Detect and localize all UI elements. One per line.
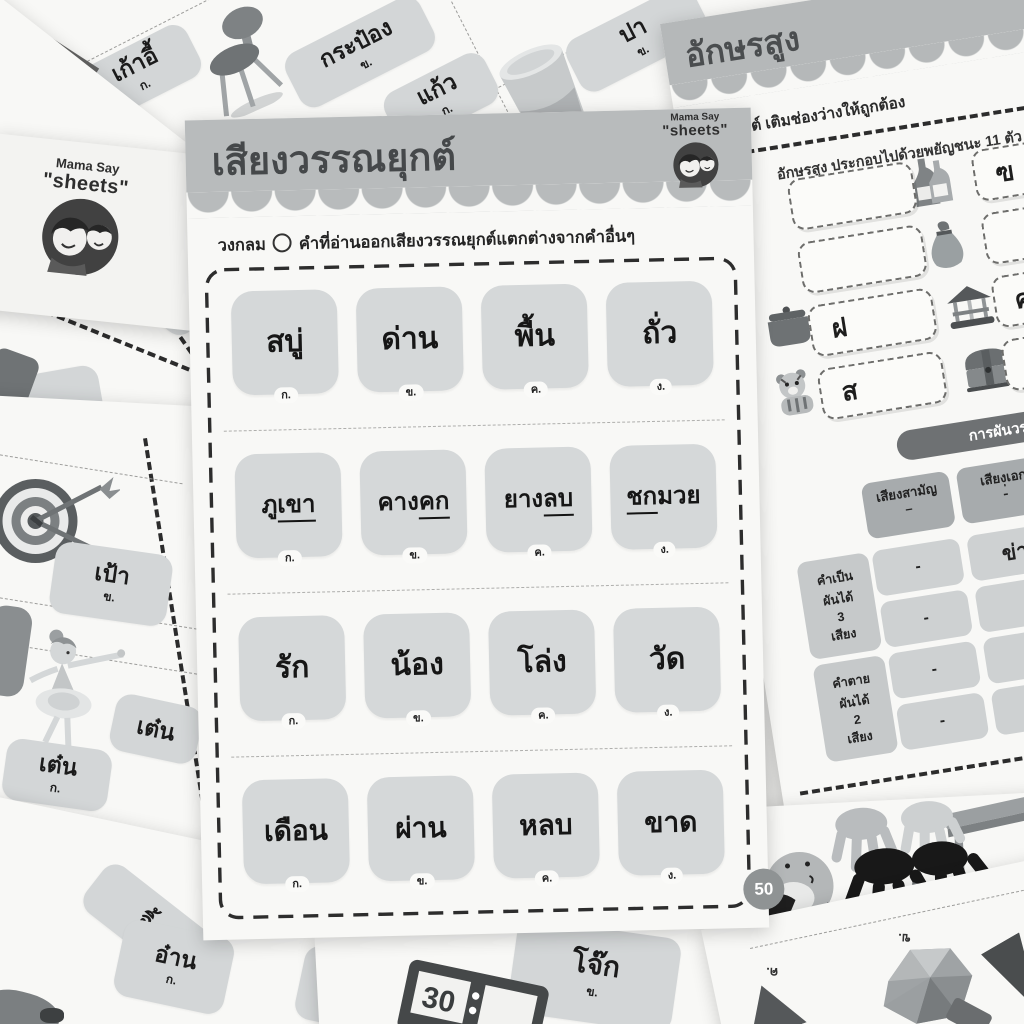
choice-label: ค. [524, 381, 549, 398]
word-tile: พื้นค. [481, 283, 589, 389]
tile-word: ยางลบ [504, 487, 574, 513]
tile-word: ชกมวย [626, 484, 701, 510]
choice-label: ค. [535, 870, 560, 887]
tile-word: ด่าน [381, 324, 439, 355]
word-tile: ภูเขาก. [234, 452, 342, 558]
choice-label: ข. [410, 873, 435, 890]
choice-label: ค. [531, 707, 556, 724]
tile-word: ผ่าน [395, 814, 447, 843]
choice-label: ง. [657, 704, 680, 721]
word-tile: ขาดง. [617, 769, 725, 875]
tile-word: สบู่ [266, 327, 304, 358]
word-tile: ถั่วง. [606, 281, 714, 387]
choice-label: ค. [527, 544, 552, 561]
answer-grid: สบู่ก.ด่านข.พื้นค.ถั่วง.ภูเขาก.คางคกข.ยา… [204, 256, 752, 920]
choice-label: ก. [281, 713, 305, 730]
word-tile: น้องข. [363, 612, 471, 718]
instruction-prefix: วงกลม [217, 236, 266, 255]
tile-word: ขาด [644, 808, 698, 837]
choice-label: ข. [406, 710, 431, 727]
tile-word: เดือน [264, 816, 328, 845]
choice-label: ข. [399, 384, 424, 401]
choice-label: ง. [661, 867, 684, 884]
word-tile: คางคกข. [359, 449, 467, 555]
word-tile: วัดง. [613, 607, 721, 713]
grid-row: เดือนก.ผ่านข.หลบค.ขาดง. [242, 769, 726, 908]
tone-worksheet: เสียงวรรณยุกต์ Mama Say "sheets" วง [185, 108, 769, 941]
choice-label: ง. [650, 379, 673, 396]
choice-label: ข. [402, 547, 427, 564]
word-tile: เดือนก. [242, 778, 350, 884]
faces-icon [669, 139, 722, 190]
instruction-suffix: คำที่อ่านออกเสียงวรรณยุกต์แตกต่างจากคำอื… [299, 227, 636, 253]
tile-word: รัก [275, 653, 310, 684]
tile-word: วัด [649, 644, 686, 675]
tile-word: น้อง [390, 650, 444, 681]
brand-name-text: "sheets" [651, 121, 739, 140]
brand-logo: Mama Say "sheets" [651, 111, 741, 196]
tile-word: โล่ง [517, 647, 567, 678]
word-tile: รักก. [238, 615, 346, 721]
choice-label: ง. [653, 541, 676, 558]
word-tile: ชกมวยง. [609, 444, 717, 550]
choice-label: ก. [278, 550, 302, 567]
circle-glyph [273, 233, 292, 252]
tile-word: ถั่ว [642, 318, 678, 349]
tile-word: คางคก [377, 490, 449, 516]
tile-word: ภูเขา [261, 493, 315, 518]
tile-word: หลบ [519, 811, 573, 840]
word-tile: ผ่านข. [367, 775, 475, 881]
grid-row: รักก.น้องข.โล่งค.วัดง. [238, 607, 722, 746]
word-tile: สบู่ก. [231, 289, 339, 395]
word-tile: ยางลบค. [484, 446, 592, 552]
grid-row: ภูเขาก.คางคกข.ยางลบค.ชกมวยง. [234, 444, 718, 583]
page-title: เสียงวรรณยุกต์ [211, 125, 457, 192]
choice-label: ก. [285, 876, 309, 893]
tile-word: พื้น [514, 321, 555, 352]
word-tile: ด่านข. [356, 286, 464, 392]
choice-label: ก. [274, 387, 298, 404]
grid-row: สบู่ก.ด่านข.พื้นค.ถั่วง. [231, 281, 715, 420]
instruction-text: วงกลมคำที่อ่านออกเสียงวรรณยุกต์แตกต่างจา… [217, 223, 635, 258]
page-number-badge: 50 [743, 868, 785, 910]
word-tile: หลบค. [492, 772, 600, 878]
main-sheet-layer: เสียงวรรณยุกต์ Mama Say "sheets" วง [0, 0, 1024, 1024]
word-tile: โล่งค. [488, 609, 596, 715]
photo-of-worksheets: เก้าอี้ ก. กระป๋อง ข. แก้ว ก. ปา ข. [0, 0, 1024, 1024]
